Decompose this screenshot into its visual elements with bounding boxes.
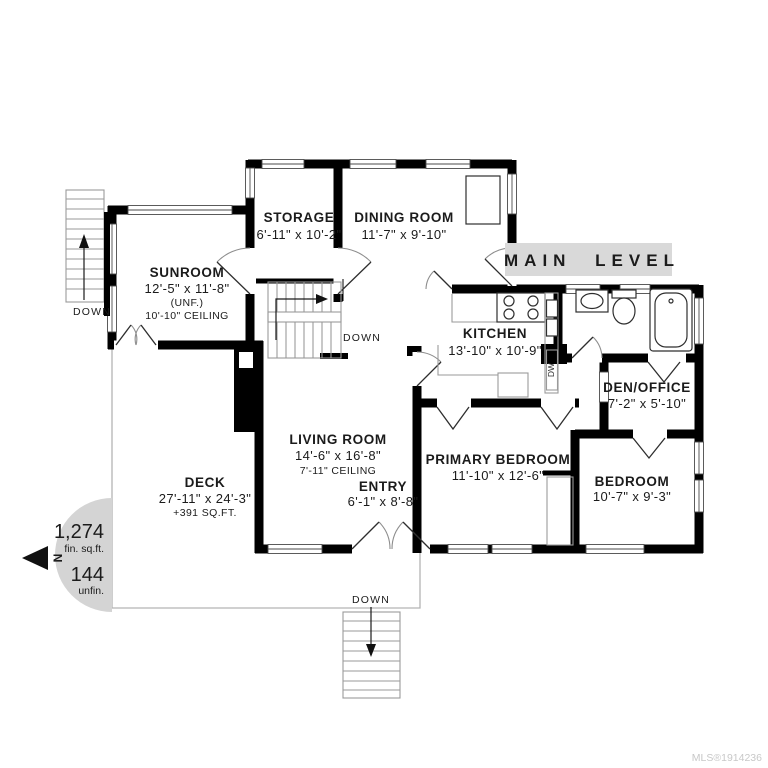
- door-gap: [572, 354, 602, 363]
- toilet-tank: [612, 290, 636, 298]
- stairs-exterior-top: DOWN: [66, 190, 111, 318]
- down-label: DOWN: [343, 332, 381, 344]
- bathtub-drain: [669, 299, 673, 303]
- unfinished-area-value: 144: [71, 564, 104, 586]
- room-note: (UNF.): [171, 297, 204, 309]
- room-dims: 7'-2" x 5'-10": [608, 396, 686, 411]
- room-name: DEN/OFFICE: [603, 380, 691, 395]
- room-name: PRIMARY BEDROOM: [426, 452, 571, 467]
- floor-plan: DOWN DOWN DOWN DW: [0, 0, 768, 768]
- door-gap: [541, 399, 575, 408]
- door-gap: [437, 399, 471, 408]
- closet: [547, 477, 573, 545]
- room-label-den-office: DEN/OFFICE 7'-2" x 5'-10": [603, 380, 691, 411]
- room-name: LIVING ROOM: [289, 432, 386, 447]
- burner-icon: [528, 296, 538, 306]
- room-name: BEDROOM: [595, 474, 670, 489]
- room-dims: 27'-11" x 24'-3": [159, 491, 252, 506]
- room-name: KITCHEN: [463, 326, 527, 341]
- stair-arrow: [276, 299, 316, 340]
- door-gap: [246, 248, 255, 294]
- kitchen-sink: [547, 300, 558, 317]
- room-label-kitchen: KITCHEN 13'-10" x 10'-9": [448, 326, 542, 358]
- stove: [497, 293, 545, 322]
- room-dims: 6'-1" x 8'-8": [348, 494, 419, 509]
- room-label-living-room: LIVING ROOM 14'-6" x 16'-8" 7'-11" CEILI…: [289, 432, 386, 477]
- bath-sink-basin: [581, 294, 603, 309]
- burner-icon: [528, 309, 538, 319]
- room-label-storage: STORAGE 6'-11" x 10'-2": [257, 210, 342, 242]
- door-swing: [217, 248, 250, 262]
- door-leaf: [338, 262, 371, 294]
- room-label-bedroom: BEDROOM 10'-7" x 9'-3": [593, 474, 671, 504]
- door-mark: [648, 362, 680, 382]
- bath-fixtures: [576, 289, 692, 351]
- room-dims: 14'-6" x 16'-8": [295, 448, 381, 463]
- banner-label: MAIN LEVEL: [504, 251, 680, 270]
- unfinished-area-unit: unfin.: [78, 585, 104, 597]
- room-dims: 11'-10" x 12'-6": [452, 468, 545, 483]
- door-leaf: [352, 522, 379, 549]
- north-arrow-icon: [22, 546, 48, 570]
- door-mark: [633, 438, 665, 458]
- door-swing: [338, 248, 371, 262]
- door-swing: [379, 522, 390, 549]
- stair-arrowhead-icon: [79, 234, 89, 248]
- door-mark: [437, 407, 469, 429]
- door-gap: [413, 352, 422, 386]
- main-level-banner: MAIN LEVEL: [504, 243, 680, 276]
- stair-treads: [277, 322, 331, 358]
- dishwasher-label: DW: [546, 363, 556, 377]
- down-label: DOWN: [352, 594, 390, 606]
- kitchen-peninsula: [498, 373, 528, 397]
- room-label-deck: DECK 27'-11" x 24'-3" +391 SQ.FT.: [159, 475, 252, 519]
- fireplace: [234, 343, 258, 432]
- room-label-primary-bedroom: PRIMARY BEDROOM 11'-10" x 12'-6": [426, 452, 571, 483]
- room-dims: 13'-10" x 10'-9": [448, 343, 542, 358]
- finished-area-unit: fin. sq.ft.: [64, 543, 104, 555]
- door-gap: [633, 430, 667, 439]
- door-gap: [648, 354, 686, 363]
- room-name: ENTRY: [359, 479, 407, 494]
- north-compass: N 1,274 fin. sq.ft. 144 unfin.: [22, 498, 112, 612]
- room-name: DINING ROOM: [354, 210, 454, 225]
- room-name: DECK: [185, 475, 226, 490]
- room-label-sunroom: SUNROOM 12'-5" x 11'-8" (UNF.) 10'-10" C…: [145, 265, 230, 322]
- burner-icon: [504, 309, 514, 319]
- room-name: SUNROOM: [150, 265, 225, 280]
- room-dims: 6'-11" x 10'-2": [257, 227, 342, 242]
- room-name: STORAGE: [264, 210, 335, 225]
- mls-watermark: MLS®1914236: [692, 752, 762, 764]
- stairs-interior: DOWN: [268, 282, 381, 358]
- refrigerator: [466, 176, 500, 224]
- door-mark: [541, 407, 573, 429]
- door-swing: [392, 522, 403, 549]
- firebox: [239, 352, 253, 368]
- room-label-entry: ENTRY 6'-1" x 8'-8": [348, 479, 419, 509]
- room-ceiling: 10'-10" CEILING: [145, 310, 229, 322]
- room-dims: 10'-7" x 9'-3": [593, 489, 671, 504]
- stair-landing: [268, 312, 341, 322]
- room-dims: 11'-7" x 9'-10": [362, 227, 447, 242]
- room-label-dining-room: DINING ROOM 11'-7" x 9'-10": [354, 210, 454, 242]
- kitchen-sink: [547, 319, 558, 336]
- toilet: [613, 298, 635, 324]
- room-extra: +391 SQ.FT.: [173, 507, 237, 519]
- finished-area-value: 1,274: [54, 521, 104, 543]
- room-ceiling: 7'-11" CEILING: [300, 465, 377, 477]
- closets: [547, 477, 573, 545]
- room-dims: 12'-5" x 11'-8": [145, 281, 230, 296]
- burner-icon: [504, 296, 514, 306]
- counter: [452, 294, 497, 322]
- north-letter: N: [51, 554, 65, 563]
- stairs-exterior-bottom: DOWN: [343, 594, 400, 698]
- down-label: DOWN: [73, 306, 111, 318]
